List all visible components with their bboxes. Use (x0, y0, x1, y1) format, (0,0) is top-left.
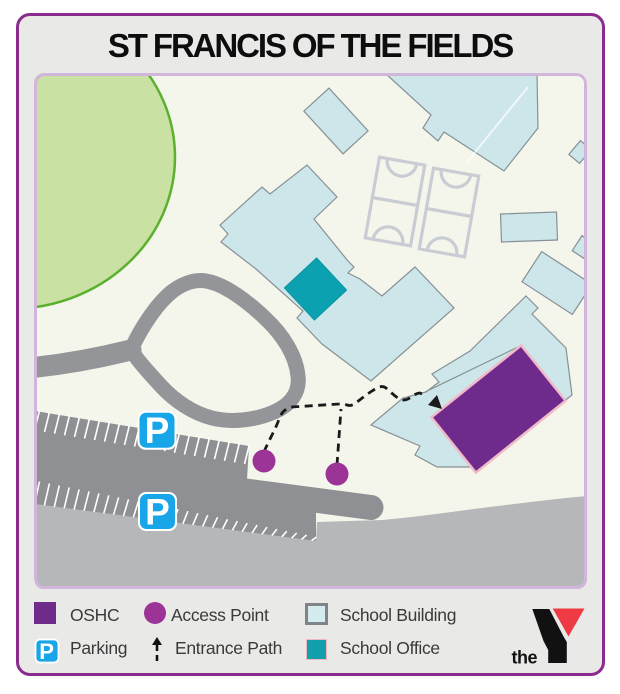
svg-text:the: the (512, 648, 538, 668)
svg-text:P: P (145, 410, 170, 451)
svg-text:P: P (39, 639, 54, 664)
svg-text:P: P (145, 491, 170, 532)
